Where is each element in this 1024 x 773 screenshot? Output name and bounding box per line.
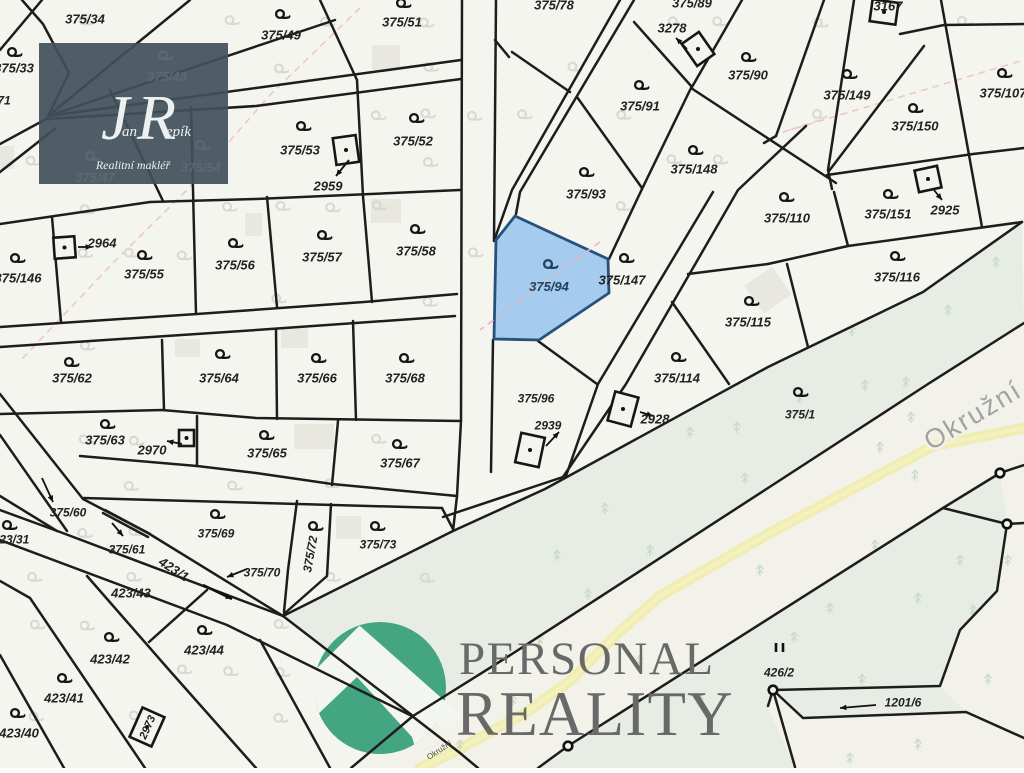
svg-text:375/146: 375/146	[0, 271, 42, 286]
svg-text:375/69: 375/69	[198, 526, 235, 540]
svg-text:2970: 2970	[137, 443, 168, 458]
svg-text:375/89: 375/89	[672, 0, 713, 11]
svg-text:375/55: 375/55	[124, 267, 165, 282]
svg-text:375/70: 375/70	[244, 565, 281, 579]
svg-text:375/49: 375/49	[261, 28, 302, 43]
svg-text:375/33: 375/33	[0, 61, 35, 76]
svg-text:375/107: 375/107	[980, 86, 1024, 101]
svg-text:375/63: 375/63	[85, 433, 126, 448]
svg-text:PERSONAL: PERSONAL	[459, 633, 715, 685]
svg-text:375/53: 375/53	[280, 143, 321, 158]
svg-text:2939: 2939	[534, 418, 562, 432]
svg-text:375/52: 375/52	[393, 134, 434, 149]
svg-text:423/40: 423/40	[0, 726, 40, 741]
svg-text:3167: 3167	[874, 0, 904, 14]
svg-text:2964: 2964	[87, 236, 118, 251]
svg-text:71: 71	[0, 93, 11, 107]
svg-text:375/57: 375/57	[302, 250, 343, 265]
svg-text:375/91: 375/91	[620, 99, 660, 114]
svg-text:375/115: 375/115	[725, 315, 772, 330]
svg-text:1201/6: 1201/6	[885, 695, 922, 709]
svg-text:2959: 2959	[313, 179, 344, 194]
svg-text:REALITY: REALITY	[456, 679, 734, 749]
svg-text:375/150: 375/150	[892, 119, 940, 134]
svg-text:375/94: 375/94	[529, 279, 570, 294]
svg-text:375/110: 375/110	[764, 211, 811, 226]
svg-text:375/60: 375/60	[50, 505, 87, 519]
svg-text:375/148: 375/148	[671, 162, 719, 177]
svg-text:375/114: 375/114	[654, 371, 701, 386]
svg-text:375/56: 375/56	[215, 258, 256, 273]
svg-text:375/73: 375/73	[360, 537, 397, 551]
svg-text:426/2: 426/2	[763, 665, 794, 679]
svg-text:375/66: 375/66	[297, 371, 338, 386]
svg-text:375/68: 375/68	[385, 371, 426, 386]
svg-text:375/58: 375/58	[396, 244, 437, 259]
svg-text:375/54: 375/54	[181, 160, 222, 175]
svg-text:423/41: 423/41	[43, 691, 84, 706]
svg-text:375/151: 375/151	[865, 207, 912, 222]
svg-text:2928: 2928	[640, 412, 671, 427]
svg-text:2925: 2925	[930, 203, 961, 218]
svg-text:375/61: 375/61	[109, 542, 146, 556]
svg-text:375/65: 375/65	[247, 446, 288, 461]
svg-text:3278: 3278	[658, 21, 688, 36]
svg-text:375/96: 375/96	[518, 391, 555, 405]
svg-text:375/64: 375/64	[199, 371, 240, 386]
svg-text:J: J	[101, 82, 132, 153]
svg-text:375/51: 375/51	[382, 15, 422, 30]
svg-text:375/90: 375/90	[728, 68, 769, 83]
svg-text:Realitní makléř: Realitní makléř	[95, 158, 172, 172]
svg-text:R: R	[136, 82, 176, 153]
svg-text:375/149: 375/149	[824, 88, 872, 103]
svg-text:375/67: 375/67	[380, 456, 421, 471]
svg-text:375/147: 375/147	[599, 273, 647, 288]
svg-text:423/43: 423/43	[110, 586, 152, 601]
svg-text:epík: epík	[166, 124, 191, 140]
svg-text:375/47: 375/47	[75, 170, 116, 185]
svg-text:375/78: 375/78	[534, 0, 575, 13]
svg-text:423/42: 423/42	[89, 652, 131, 667]
svg-text:423/31: 423/31	[0, 532, 30, 546]
svg-text:375/62: 375/62	[52, 371, 93, 386]
svg-text:423/44: 423/44	[183, 643, 225, 658]
svg-text:375/34: 375/34	[65, 12, 106, 27]
svg-text:375/116: 375/116	[874, 270, 921, 285]
svg-text:375/1: 375/1	[785, 407, 815, 421]
svg-text:375/93: 375/93	[566, 187, 607, 202]
svg-text:an: an	[122, 124, 137, 140]
